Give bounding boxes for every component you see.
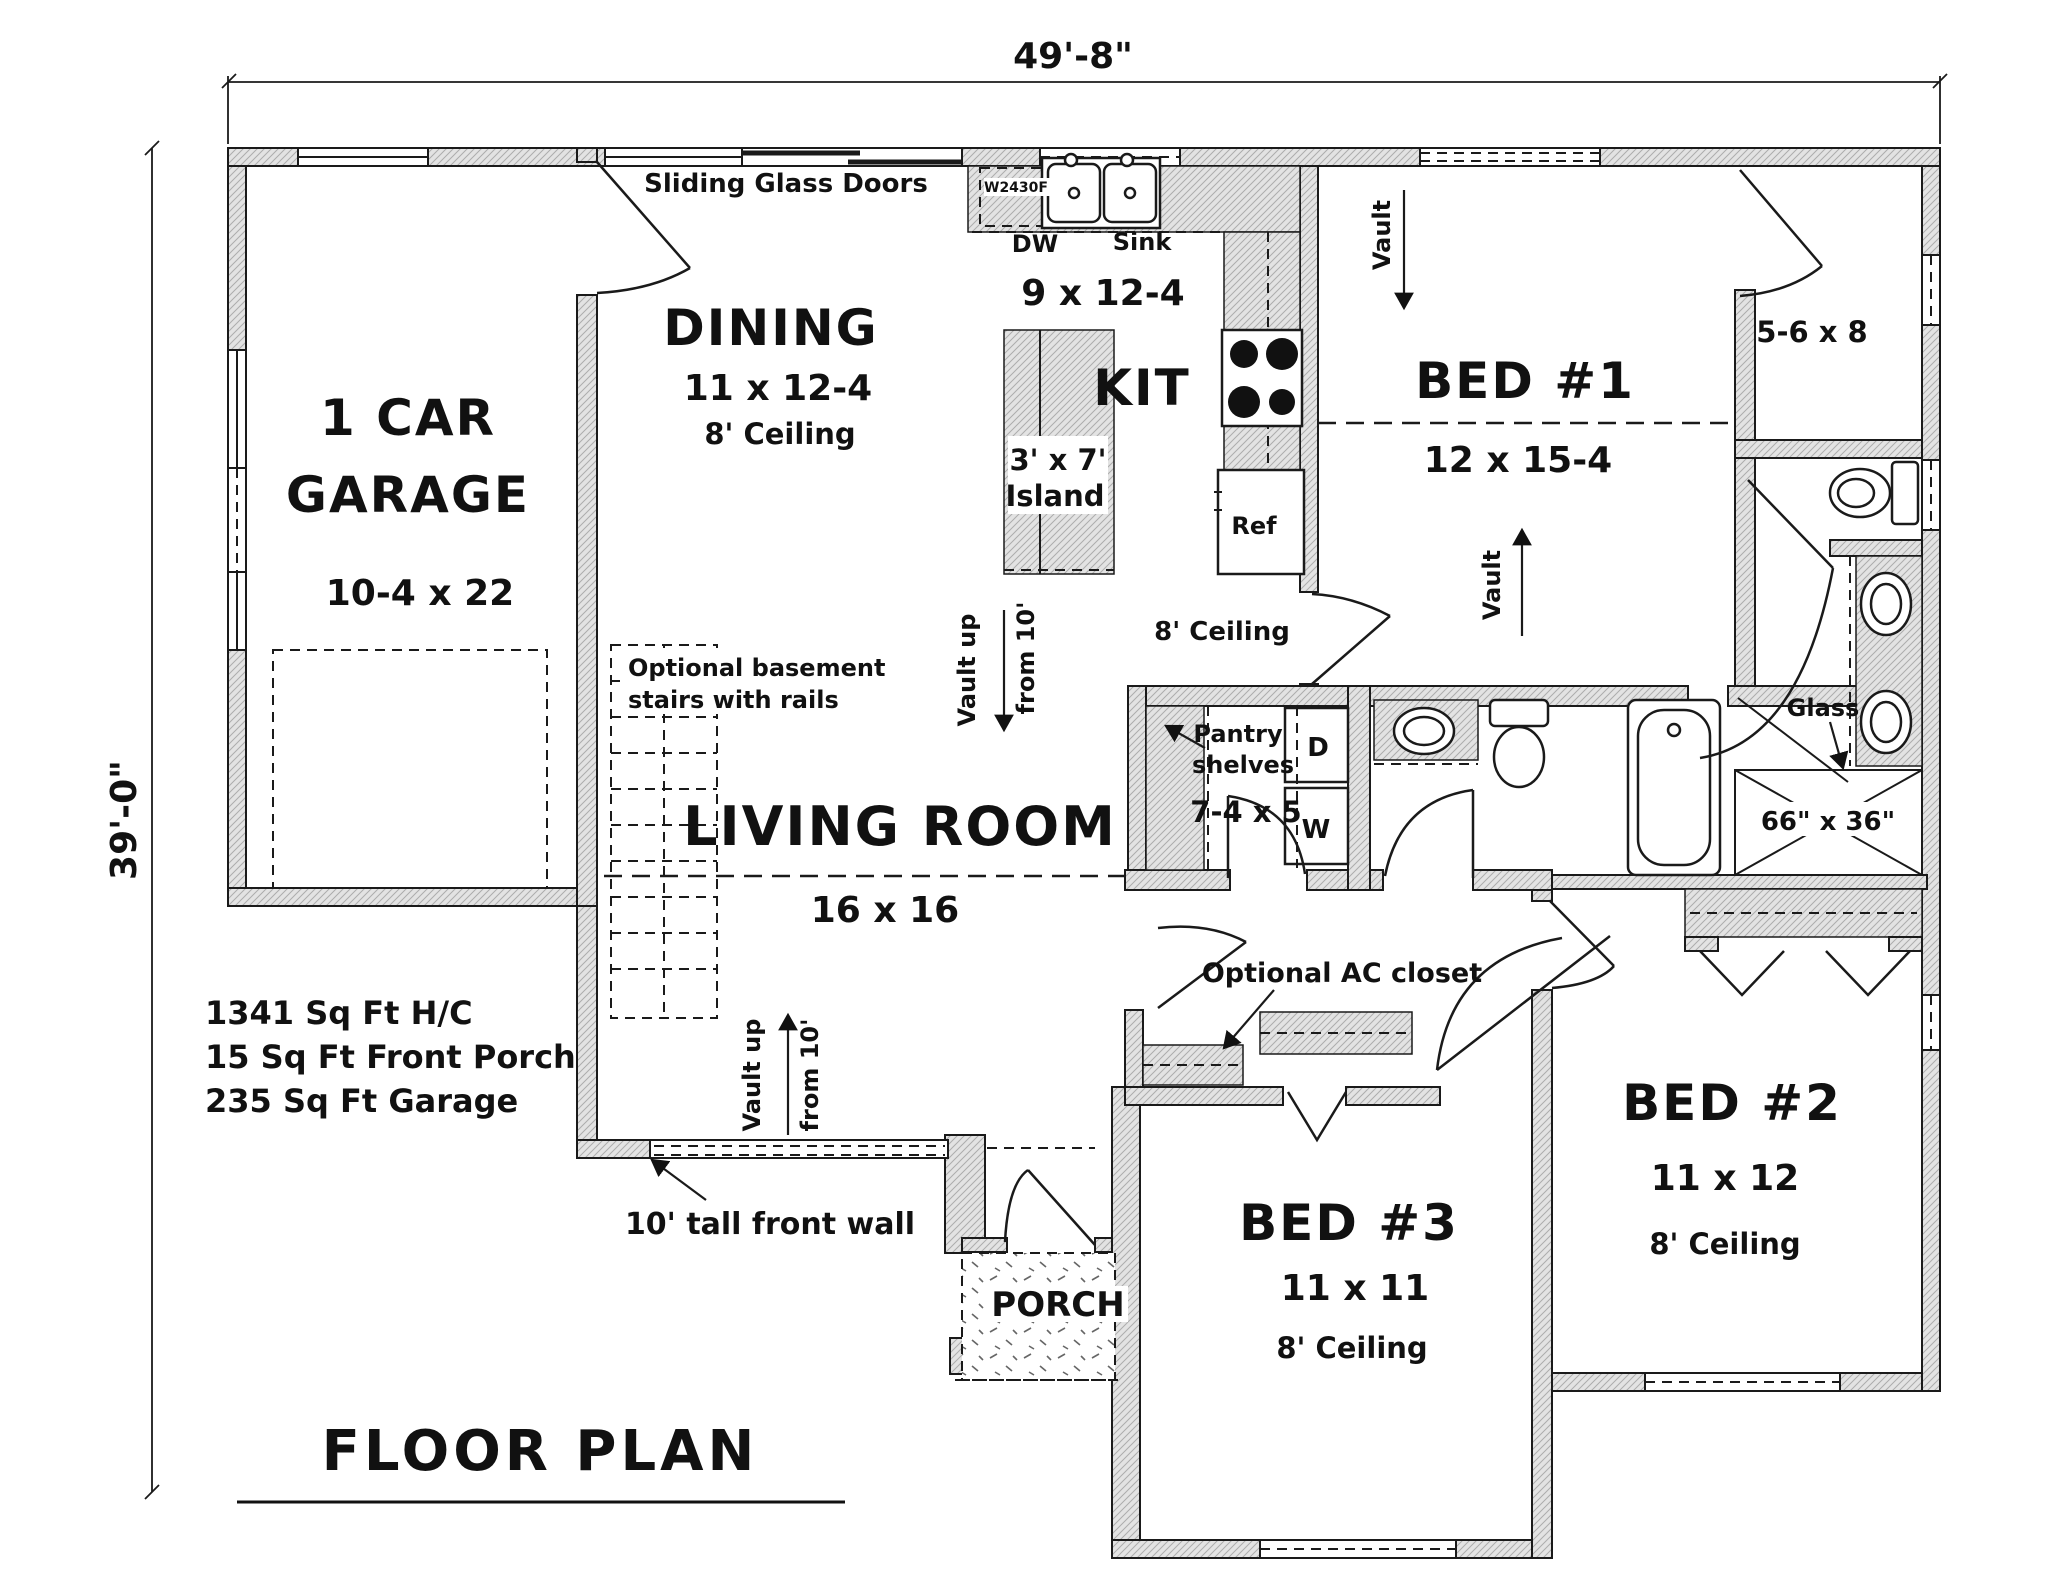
stat-line-3: 235 Sq Ft Garage: [205, 1082, 518, 1120]
garage-size: 10-4 x 22: [326, 573, 514, 614]
toilet-master: [1830, 462, 1918, 524]
dim-left-label: 39'-0": [104, 760, 145, 880]
vault-label-2: Vault: [1478, 550, 1506, 620]
bifold-door-bed2-closet-left: [1700, 951, 1784, 995]
dryer-label: D: [1307, 733, 1329, 763]
stairs-note-2: stairs with rails: [628, 686, 839, 714]
bed2-name: BED #2: [1622, 1074, 1842, 1132]
garage-name-2: GARAGE: [286, 466, 530, 524]
dishwasher-label: DW: [1012, 230, 1058, 258]
bed3-size: 11 x 11: [1281, 1268, 1429, 1309]
stat-line-2: 15 Sq Ft Front Porch: [205, 1038, 576, 1076]
from-10-1: from 10': [1012, 602, 1040, 715]
ac-closet-label: Optional AC closet: [1202, 958, 1482, 989]
bed3-name: BED #3: [1239, 1194, 1459, 1252]
laundry-size: 7-4 x 5: [1190, 795, 1301, 829]
glass-arrow: [1830, 722, 1843, 768]
stat-line-1: 1341 Sq Ft H/C: [205, 994, 473, 1032]
kitchen-name: KIT: [1093, 359, 1190, 417]
ref-label: Ref: [1231, 512, 1277, 540]
vault-up-2: Vault up: [738, 1019, 766, 1132]
toilet-hall-bath: [1490, 700, 1548, 787]
sliding-doors-label: Sliding Glass Doors: [644, 169, 928, 199]
porch-name: PORCH: [991, 1285, 1124, 1325]
door-hall-swing: [1437, 936, 1610, 1070]
bed2-ceiling: 8' Ceiling: [1649, 1227, 1800, 1261]
kitchen-size: 9 x 12-4: [1021, 273, 1184, 314]
drawing-title: FLOOR PLAN: [322, 1419, 759, 1484]
vault-up-1: Vault up: [953, 614, 981, 727]
from-10-2: from 10': [796, 1019, 824, 1132]
glass-label: Glass: [1787, 694, 1860, 722]
washer-label: W: [1302, 815, 1331, 845]
bed3-ceiling: 8' Ceiling: [1276, 1331, 1427, 1365]
kitchen-ceiling: 8' Ceiling: [1154, 617, 1290, 647]
bed1-name: BED #1: [1415, 352, 1635, 410]
garage-area: [273, 650, 547, 888]
bathtub: [1628, 700, 1720, 875]
island-word: Island: [1006, 479, 1105, 513]
door-bed1-closet: [1740, 170, 1822, 296]
door-kitchen-bed1: [1312, 594, 1390, 684]
living-name: LIVING ROOM: [683, 795, 1117, 858]
stove: [1222, 330, 1302, 426]
sink-label: Sink: [1113, 228, 1173, 256]
closet1-size: 5-6 x 8: [1756, 315, 1867, 349]
pantry-label-2: shelves: [1192, 751, 1294, 779]
island-size: 3' x 7': [1009, 443, 1106, 477]
shower-size: 66" x 36": [1761, 807, 1895, 837]
door-entry: [1005, 1170, 1095, 1245]
living-size: 16 x 16: [811, 890, 959, 931]
floor-plan-page: 49'-8" 39'-0": [0, 0, 2048, 1582]
dining-size: 11 x 12-4: [684, 368, 872, 409]
front-wall-note: 10' tall front wall: [625, 1207, 915, 1242]
pantry-label-1: Pantry: [1193, 720, 1283, 748]
door-hall-bath: [1385, 790, 1473, 878]
bed2-size: 11 x 12: [1651, 1158, 1799, 1199]
bifold-door-bed2-closet-right: [1826, 951, 1910, 995]
dining-ceiling: 8' Ceiling: [704, 417, 855, 451]
stairs-note-1: Optional basement: [628, 654, 885, 682]
hall-bath-fixtures: [1374, 700, 1720, 875]
vault-label-1: Vault: [1368, 200, 1396, 270]
dining-name: DINING: [663, 299, 878, 357]
cabinet-label: W2430F: [984, 180, 1048, 196]
front-wall-arrow: [652, 1160, 706, 1200]
bed1-size: 12 x 15-4: [1424, 440, 1612, 481]
garage-name-1: 1 CAR: [320, 389, 496, 447]
kitchen-sink: [1042, 154, 1160, 228]
bifold-door-bed3: [1288, 1092, 1346, 1140]
dim-top-label: 49'-8": [1013, 36, 1133, 77]
floor-plan-drawing: 49'-8" 39'-0": [0, 0, 2048, 1582]
